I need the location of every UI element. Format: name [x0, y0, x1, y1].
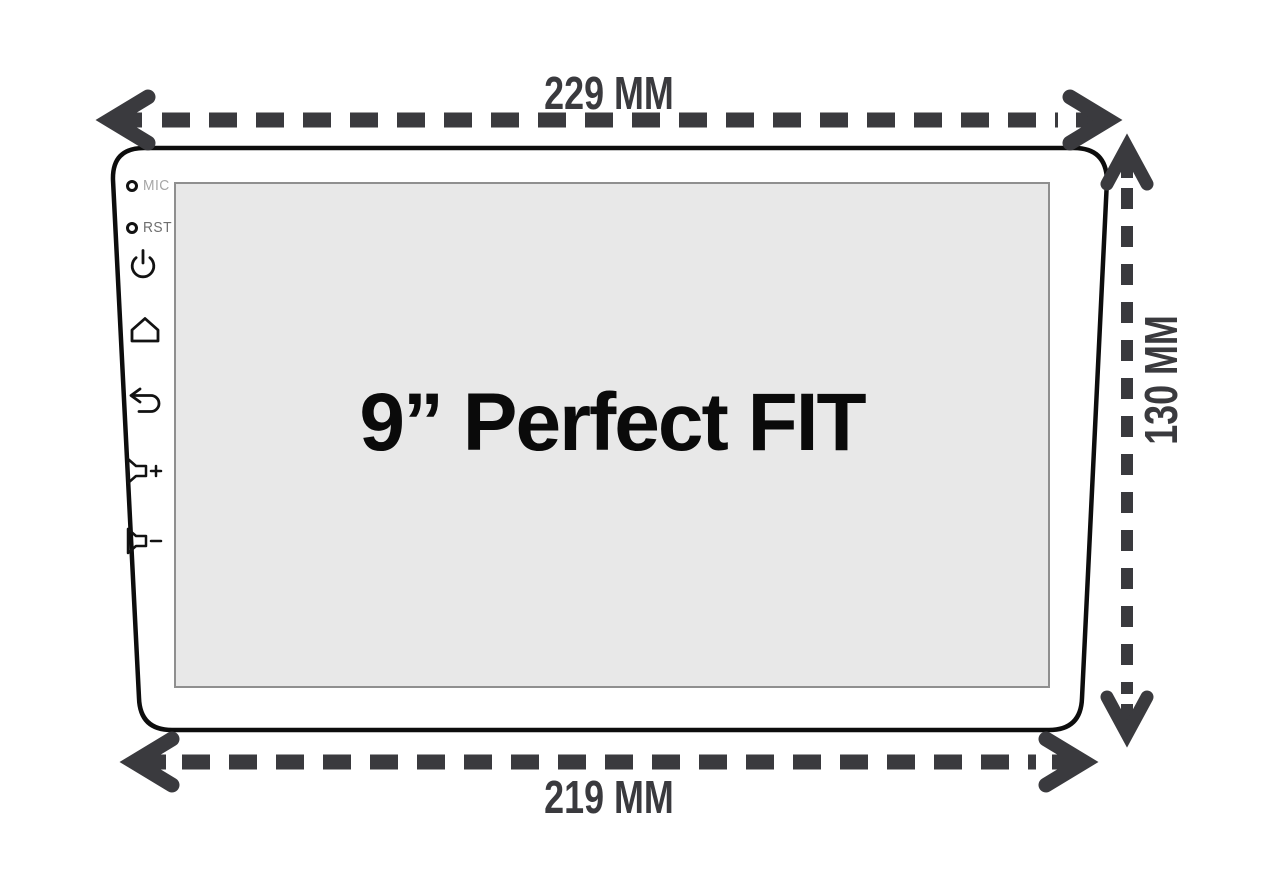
screen-area: 9” Perfect FIT: [175, 183, 1049, 687]
rst-label: RST: [143, 219, 172, 237]
dim-label-right-height: 130 MM: [1138, 315, 1184, 445]
screen-title: 9” Perfect FIT: [359, 376, 864, 470]
mic-label: MIC: [143, 177, 170, 195]
dim-label-top-width: 229 MM: [217, 70, 1002, 116]
dimension-diagram-canvas: 229 MM 219 MM 130 MM 9” Perfect FIT MIC …: [0, 0, 1280, 878]
dim-label-bottom-width: 219 MM: [237, 774, 981, 820]
